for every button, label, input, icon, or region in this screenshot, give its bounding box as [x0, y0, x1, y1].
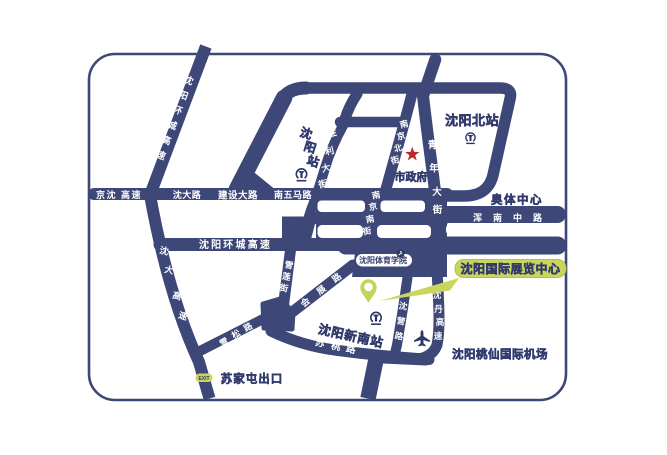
- svg-text:大: 大: [432, 186, 442, 198]
- svg-text:沈阳国际展览中心: 沈阳国际展览中心: [460, 261, 560, 276]
- svg-text:奥体中心: 奥体中心: [490, 193, 543, 207]
- svg-text:市政府: 市政府: [395, 170, 428, 184]
- svg-text:沈阳北站: 沈阳北站: [445, 113, 499, 128]
- svg-text:街: 街: [432, 204, 443, 216]
- svg-text:丹: 丹: [434, 304, 443, 314]
- svg-text:南五马路: 南五马路: [274, 189, 313, 200]
- svg-text:沈阳桃仙国际机场: 沈阳桃仙国际机场: [452, 347, 548, 361]
- svg-text:青: 青: [428, 139, 438, 151]
- svg-text:沈大路: 沈大路: [173, 189, 202, 200]
- svg-text:浑南中路: 浑南中路: [473, 212, 553, 223]
- svg-text:速: 速: [434, 331, 443, 341]
- svg-text:沈阳环城高速: 沈阳环城高速: [199, 238, 272, 251]
- svg-text:年: 年: [429, 163, 439, 175]
- svg-text:建设大路: 建设大路: [217, 190, 258, 202]
- svg-text:EXIT: EXIT: [198, 376, 209, 382]
- svg-text:苏家屯出口: 苏家屯出口: [221, 372, 284, 386]
- svg-text:京沈 高速: 京沈 高速: [96, 189, 142, 200]
- svg-text:高: 高: [436, 317, 445, 327]
